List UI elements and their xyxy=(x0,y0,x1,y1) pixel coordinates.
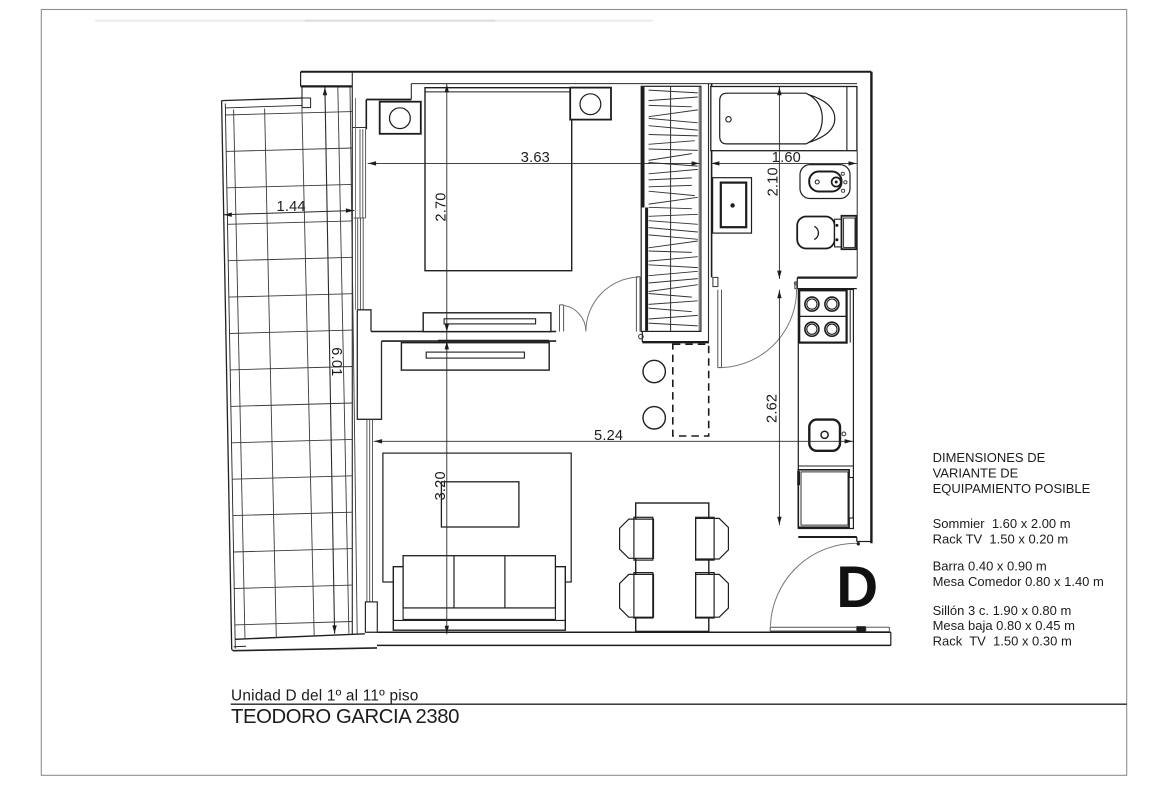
svg-text:TEODORO GARCIA 2380: TEODORO GARCIA 2380 xyxy=(231,706,459,728)
svg-text:DIMENSIONES DE: DIMENSIONES DE xyxy=(933,450,1046,465)
svg-text:1.44: 1.44 xyxy=(277,199,306,215)
svg-text:2.10: 2.10 xyxy=(766,167,782,196)
svg-text:Sommier 1.60 x 2.00 m: Sommier 1.60 x 2.00 m xyxy=(933,516,1071,531)
svg-text:2.62: 2.62 xyxy=(765,394,781,423)
svg-text:Unidad D del 1º al 11º piso: Unidad D del 1º al 11º piso xyxy=(231,687,418,704)
svg-text:6.01: 6.01 xyxy=(328,347,344,376)
svg-text:D: D xyxy=(836,555,878,620)
svg-text:Mesa Comedor 0.80 x 1.40 m: Mesa Comedor 0.80 x 1.40 m xyxy=(933,574,1104,589)
svg-text:Rack TV 1.50 x 0.30 m: Rack TV 1.50 x 0.30 m xyxy=(933,634,1072,649)
svg-text:EQUIPAMIENTO POSIBLE: EQUIPAMIENTO POSIBLE xyxy=(933,481,1091,496)
svg-text:Rack TV 1.50 x 0.20 m: Rack TV 1.50 x 0.20 m xyxy=(933,531,1069,546)
svg-text:VARIANTE DE: VARIANTE DE xyxy=(933,465,1019,480)
svg-text:3.63: 3.63 xyxy=(521,150,550,166)
svg-text:2.70: 2.70 xyxy=(433,192,449,221)
svg-text:Barra 0.40 x 0.90 m: Barra 0.40 x 0.90 m xyxy=(933,559,1047,574)
svg-text:1.60: 1.60 xyxy=(772,150,801,166)
svg-text:5.24: 5.24 xyxy=(594,428,623,444)
svg-text:Mesa baja 0.80 x 0.45 m: Mesa baja 0.80 x 0.45 m xyxy=(933,618,1075,633)
svg-text:Sillón 3 c. 1.90 x 0.80 m: Sillón 3 c. 1.90 x 0.80 m xyxy=(933,603,1072,618)
svg-text:3.20: 3.20 xyxy=(433,471,449,500)
